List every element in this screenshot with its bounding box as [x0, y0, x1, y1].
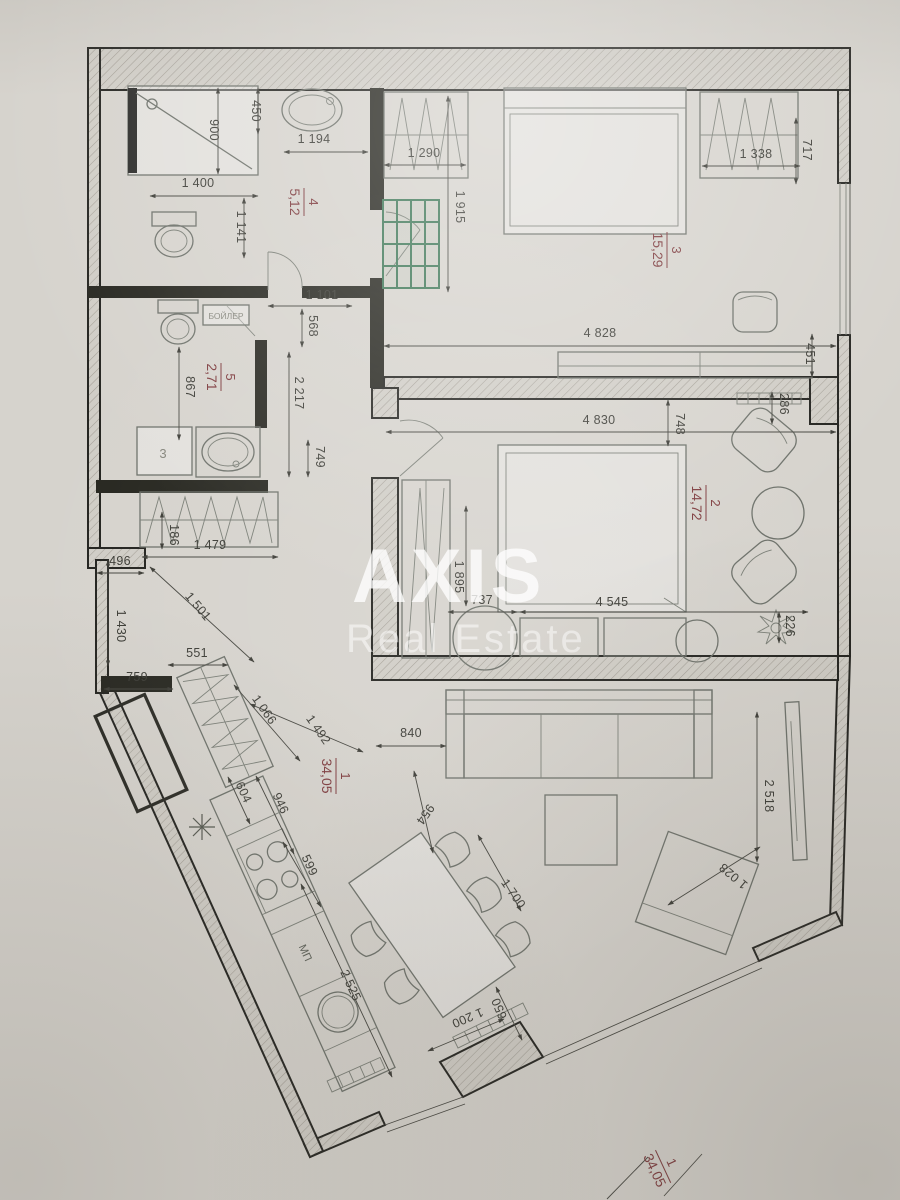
dim-label: 551: [186, 646, 208, 660]
svg-text:2: 2: [708, 499, 723, 506]
dim-label: 1 338: [740, 147, 773, 161]
floor-plan-photo: { "watermark": { "brand": "AXIS", "subti…: [0, 0, 900, 1200]
dim-label: 840: [400, 726, 422, 740]
svg-text:4: 4: [306, 198, 321, 205]
dim-label: 496: [109, 554, 131, 568]
svg-text:15,29: 15,29: [650, 232, 666, 267]
watermark-brand: AXIS: [352, 534, 545, 619]
shower-wall-strip: [128, 88, 137, 173]
dim-label: 1 479: [194, 538, 227, 552]
dim-label: 759: [126, 670, 148, 684]
dim-label: 451: [803, 343, 817, 365]
dim-label: 186: [167, 524, 181, 546]
dim-label: 568: [306, 315, 320, 337]
bed-room3: [504, 88, 686, 234]
dim-label: 226: [783, 615, 797, 637]
svg-text:5,12: 5,12: [287, 188, 303, 215]
svg-text:3: 3: [669, 246, 684, 253]
dim-label: 1 915: [453, 191, 467, 224]
dim-label: 1 194: [298, 132, 331, 146]
dim-label: 4 830: [583, 413, 616, 427]
dim-label: 1 430: [114, 610, 128, 643]
dim-label: 748: [673, 413, 687, 435]
dim-label: 4 828: [584, 326, 617, 340]
dim-label: 1 141: [234, 211, 248, 244]
svg-text:5: 5: [223, 373, 238, 380]
dim-label: 4 545: [596, 595, 629, 609]
watermark-subtitle: Real Estate: [346, 617, 586, 661]
dim-label: 2 217: [292, 377, 306, 410]
dim-label: 749: [313, 446, 327, 468]
dim-label: 1 290: [408, 146, 441, 160]
dim-label: 1 400: [182, 176, 215, 190]
svg-text:1: 1: [338, 772, 353, 779]
svg-text:34,05: 34,05: [319, 758, 335, 793]
svg-text:2,71: 2,71: [204, 363, 220, 390]
floor-plan-drawing: БОЙЛЕР 3: [0, 0, 900, 1200]
dim-label: 867: [183, 376, 197, 398]
dim-label: 717: [800, 139, 814, 161]
dim-label: 900: [207, 119, 221, 141]
boiler-label: БОЙЛЕР: [208, 310, 243, 321]
washing-machine-label: 3: [159, 446, 166, 461]
dim-label: 1 101: [306, 288, 339, 302]
dim-label: 286: [777, 393, 791, 415]
svg-text:14,72: 14,72: [689, 485, 705, 520]
dim-label: 2 518: [762, 780, 776, 813]
dim-label: 450: [249, 100, 263, 122]
